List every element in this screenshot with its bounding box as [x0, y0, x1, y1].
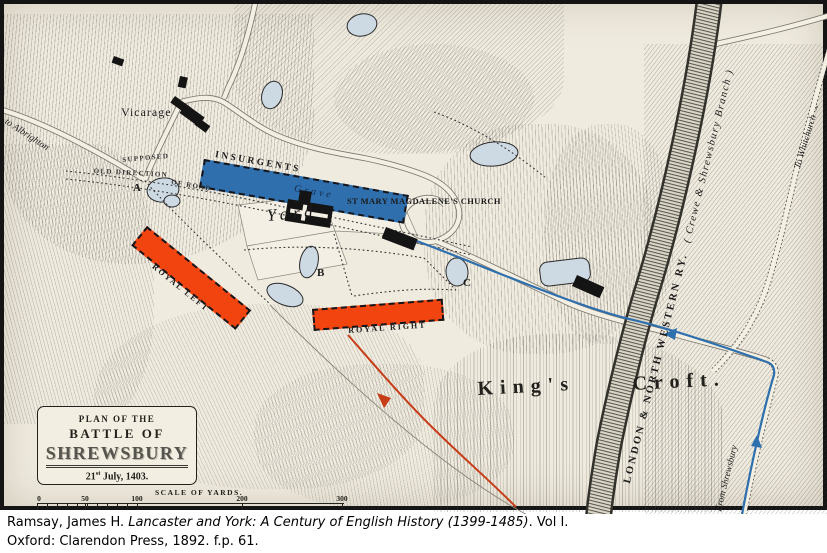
- scale-200: 200: [236, 494, 247, 503]
- marker-c: C: [463, 277, 471, 289]
- church-label: ST MARY MAGDALENE'S CHURCH: [347, 196, 501, 206]
- railway: [598, 4, 710, 514]
- church-tower: [298, 190, 312, 203]
- scale-50: 50: [81, 494, 89, 503]
- title-box: PLAN OF THE BATTLE OF SHREWSBURY 21st Ju…: [37, 406, 197, 485]
- title-line3: SHREWSBURY: [46, 443, 188, 468]
- title-line1: PLAN OF THE: [38, 414, 196, 424]
- marker-b: B: [317, 267, 324, 279]
- scale-0: 0: [37, 494, 41, 503]
- title-date: 21st July, 1403.: [38, 470, 196, 482]
- battle-map-plate: Grave INSURGENTS ROYAL LEFT ROYAL RIGHT …: [0, 0, 827, 553]
- caption-line2: Oxford: Clarendon Press, 1892. f.p. 61.: [7, 533, 820, 552]
- vicarage-label: Vicarage: [121, 105, 172, 120]
- caption: Ramsay, James H. Lancaster and York: A C…: [0, 510, 827, 553]
- field-paths: [270, 305, 539, 514]
- title-line2: BATTLE OF: [38, 426, 196, 442]
- caption-line1: Ramsay, James H. Lancaster and York: A C…: [7, 514, 820, 533]
- route-arrow-red: [377, 393, 391, 408]
- marker-a: A: [133, 182, 141, 194]
- scale-label: SCALE OF YARDS.: [155, 488, 243, 497]
- vicarage-buildings: [112, 56, 211, 133]
- scale-300: 300: [336, 494, 347, 503]
- map-area: Grave INSURGENTS ROYAL LEFT ROYAL RIGHT …: [0, 0, 827, 510]
- scale-100: 100: [131, 494, 142, 503]
- scale-bar: SCALE OF YARDS. 0 50 100 200 300: [37, 488, 347, 510]
- royal-route: [348, 335, 516, 507]
- scale-rule: [37, 503, 344, 509]
